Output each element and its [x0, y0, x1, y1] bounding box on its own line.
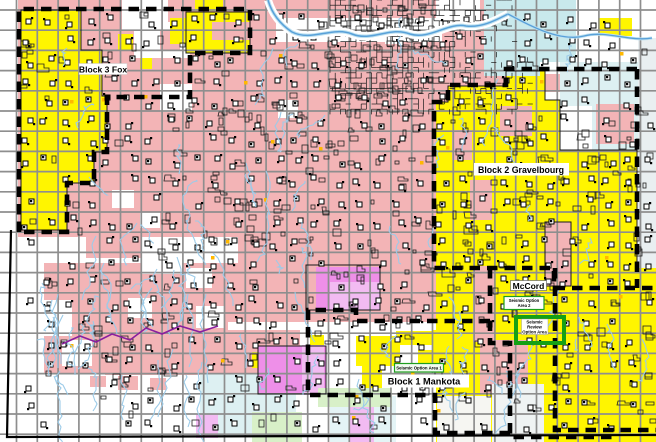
svg-text:McCord: McCord [513, 281, 545, 291]
svg-text:Block 3 Fox: Block 3 Fox [79, 64, 127, 74]
svg-text:Seismic Option Area 1: Seismic Option Area 1 [396, 366, 442, 371]
svg-text:Block 2 Gravelbourg: Block 2 Gravelbourg [478, 165, 564, 175]
svg-text:Block 1 Mankota: Block 1 Mankota [388, 377, 461, 387]
svg-text:Area 2: Area 2 [518, 303, 531, 308]
svg-text:Option Area: Option Area [522, 330, 547, 335]
